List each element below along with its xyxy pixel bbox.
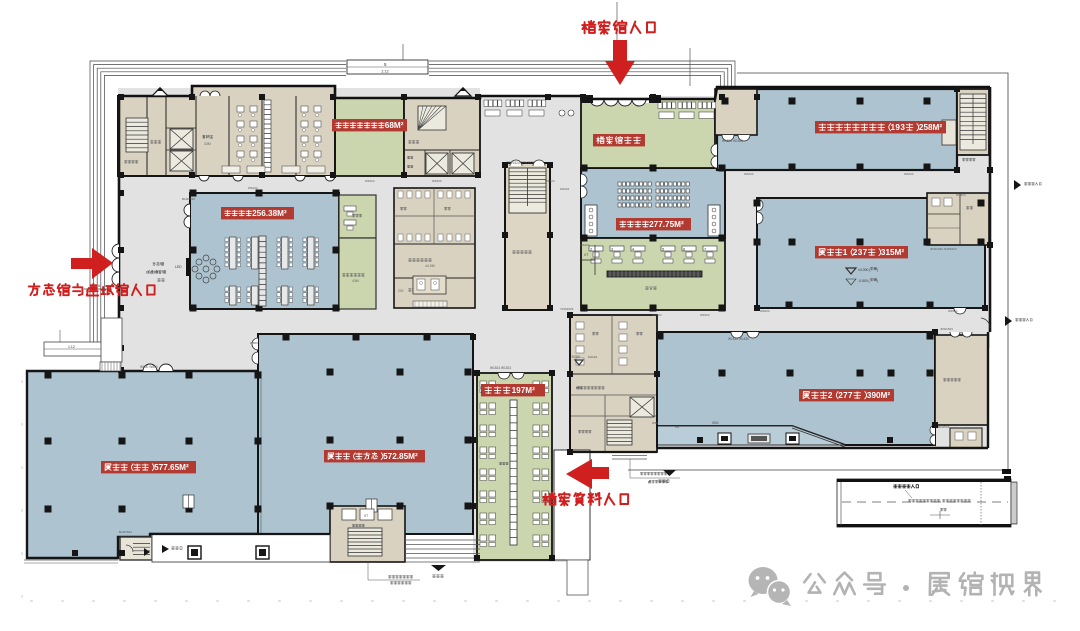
- svg-text:-0.500 (: -0.500 (: [858, 279, 871, 283]
- svg-text:M1024: M1024: [560, 187, 570, 191]
- svg-text:256.38M²: 256.38M²: [252, 209, 287, 218]
- svg-text:W1524: W1524: [365, 179, 375, 183]
- svg-text:W1630 W1630: W1630 W1630: [722, 139, 743, 143]
- svg-text:W1024: W1024: [248, 186, 258, 190]
- svg-text:W1524: W1524: [545, 179, 555, 183]
- svg-text:W1024: W1024: [744, 172, 754, 176]
- svg-text:+0.000: +0.000: [570, 355, 580, 359]
- svg-text:): ): [877, 268, 878, 272]
- svg-text:200: 200: [398, 289, 404, 293]
- svg-text:W800 W800: W800 W800: [140, 365, 158, 369]
- svg-text:YFW1523: YFW1523: [560, 307, 574, 311]
- svg-text:3: 3: [900, 123, 905, 132]
- svg-text:W1524: W1524: [700, 313, 710, 317]
- svg-text:): ): [877, 279, 878, 283]
- svg-text:JFW1524-JFW1524: JFW1524-JFW1524: [506, 161, 535, 165]
- svg-text:1:12: 1:12: [68, 345, 75, 349]
- svg-text:W1630 W1630: W1630 W1630: [728, 337, 749, 341]
- svg-text:JFW1523: JFW1523: [940, 327, 953, 331]
- svg-text:W1524 W1524: W1524 W1524: [490, 366, 511, 370]
- svg-text:1:12: 1:12: [381, 69, 390, 74]
- svg-text:M1024: M1024: [588, 355, 598, 359]
- svg-text:7: 7: [863, 248, 868, 257]
- svg-text:7: 7: [848, 391, 853, 400]
- svg-text:33M: 33M: [204, 142, 211, 146]
- svg-text:W800: W800: [250, 341, 258, 345]
- svg-text:W1624: W1624: [652, 313, 662, 317]
- svg-text:BLW626: BLW626: [938, 425, 950, 429]
- svg-text:BLM1524: BLM1524: [119, 530, 132, 534]
- svg-text:W1524: W1524: [432, 179, 442, 183]
- svg-text:W80: W80: [712, 421, 719, 425]
- svg-text:W1524: W1524: [956, 193, 966, 197]
- svg-text:M2: M2: [675, 425, 679, 429]
- svg-text:W80: W80: [652, 421, 659, 425]
- svg-text:258M²: 258M²: [919, 123, 942, 132]
- svg-text:390M²: 390M²: [867, 391, 890, 400]
- svg-text:2: 2: [828, 391, 833, 400]
- svg-text:43M: 43M: [352, 279, 359, 283]
- svg-text:LED: LED: [175, 265, 182, 269]
- svg-text:572.85M²: 572.85M²: [383, 452, 418, 461]
- svg-text:W1024: W1024: [760, 309, 770, 313]
- svg-text:±0.000 (: ±0.000 (: [858, 268, 871, 272]
- svg-text:W1024: W1024: [580, 243, 590, 247]
- svg-text:277.75M²: 277.75M²: [649, 220, 684, 229]
- svg-text:JFW1023 JFW1023: JFW1023 JFW1023: [930, 247, 957, 251]
- svg-text:315M²: 315M²: [881, 248, 904, 257]
- svg-text:577.65M²: 577.65M²: [154, 463, 189, 472]
- svg-text:1: 1: [843, 248, 848, 257]
- svg-text:197M²: 197M²: [512, 386, 535, 395]
- svg-text:68M²: 68M²: [385, 121, 404, 130]
- svg-text:BLM1530: BLM1530: [182, 197, 195, 201]
- svg-text:XT: XT: [584, 253, 588, 257]
- svg-text:XT: XT: [364, 514, 368, 518]
- svg-text:W1024: W1024: [904, 172, 914, 176]
- svg-text:W1524: W1524: [948, 309, 958, 313]
- svg-text:44.5M: 44.5M: [425, 264, 435, 268]
